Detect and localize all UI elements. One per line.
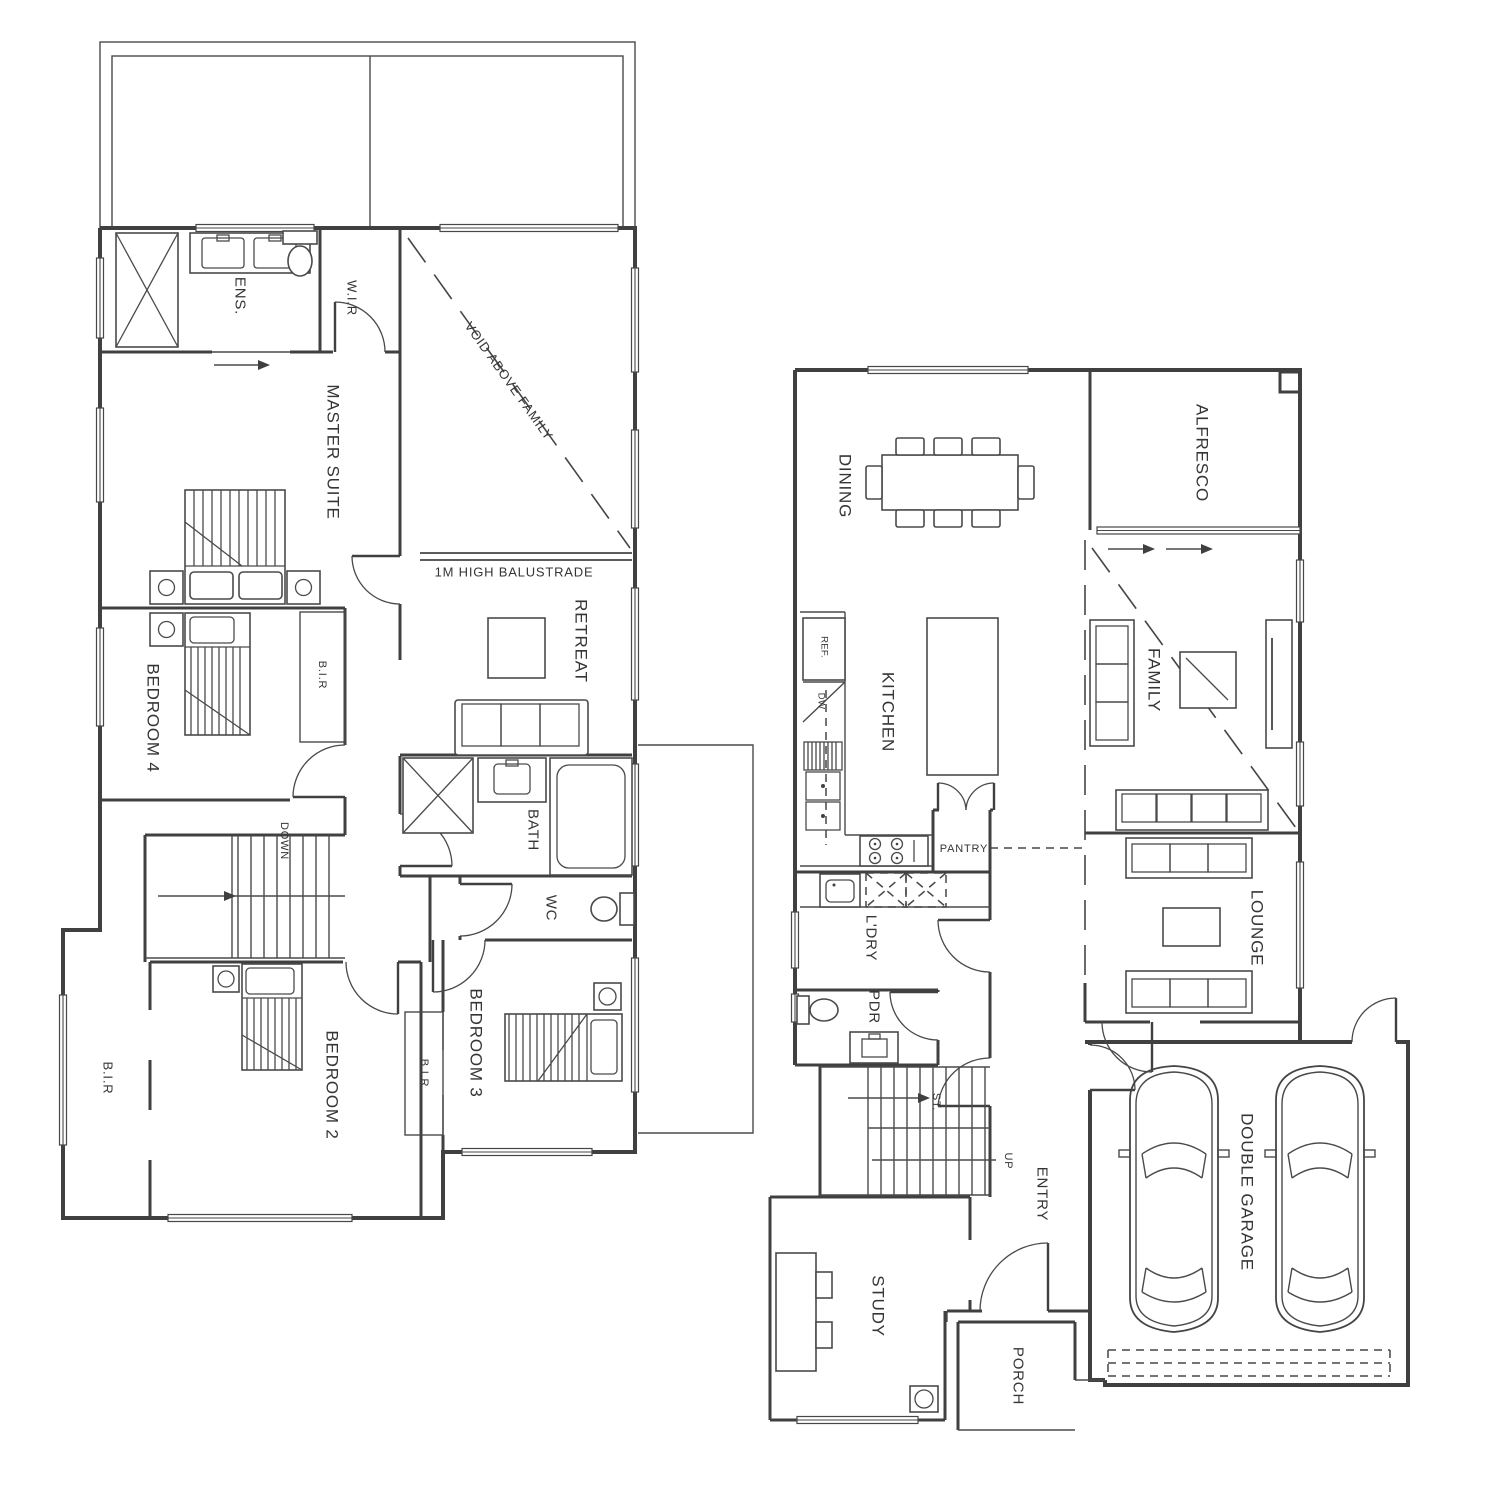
upper-roof-outline: [100, 42, 635, 228]
laundry-bench: [800, 873, 990, 907]
label-bedroom-3: BEDROOM 3: [467, 988, 486, 1097]
label-powder: PDR: [866, 990, 883, 1024]
label-porch: PORCH: [1010, 1347, 1027, 1405]
lower-floor-reference-outline: [638, 745, 753, 1133]
floor-plan-sheet: ENS. W.I.R MASTER SUITE VOID ABOVE FAMIL…: [0, 0, 1500, 1500]
label-void-above-family: VOID ABOVE FAMILY: [462, 319, 557, 443]
lounge-furniture: [1126, 838, 1252, 1013]
wc-toilet: [591, 893, 634, 925]
bedroom2-bed: [213, 964, 302, 1070]
car-2: [1265, 1066, 1375, 1332]
family-furniture: [1090, 620, 1292, 830]
kitchen-island: [927, 618, 998, 775]
lounge-table: [1163, 908, 1220, 946]
label-family: FAMILY: [1145, 648, 1164, 712]
label-balustrade: 1M HIGH BALUSTRADE: [435, 565, 594, 580]
label-alfresco: ALFRESCO: [1193, 404, 1212, 502]
bath-tub: [550, 758, 632, 875]
label-kitchen: KITCHEN: [879, 672, 898, 752]
ground-labels: DINING ALFRESCO KITCHEN REF. DW PANTRY F…: [816, 404, 1267, 1405]
cooktop: [860, 836, 928, 866]
bedroom4-bed: [150, 613, 250, 735]
label-study: STUDY: [869, 1275, 888, 1337]
label-double-garage: DOUBLE GARAGE: [1238, 1113, 1257, 1271]
upper-floor-plan: ENS. W.I.R MASTER SUITE VOID ABOVE FAMIL…: [60, 42, 754, 1222]
study-furniture: [776, 1253, 938, 1412]
label-bath: BATH: [525, 809, 542, 851]
label-stairs: ST.: [930, 1093, 942, 1111]
label-laundry: L'DRY: [863, 915, 880, 962]
dining-table: [866, 438, 1034, 527]
bath-shower: [403, 758, 473, 833]
upper-stairs: [145, 835, 345, 958]
label-pantry: PANTRY: [940, 843, 988, 855]
garage-door: [1108, 1350, 1390, 1376]
car-1: [1119, 1066, 1229, 1332]
label-down: DOWN: [278, 822, 290, 860]
bath-vanity: [478, 758, 546, 802]
label-bir-bedroom4: B.I.R: [316, 661, 328, 689]
ground-dashed-lines: [826, 540, 1296, 1022]
bedroom3-bed: [505, 983, 622, 1081]
ground-floor-plan: DINING ALFRESCO KITCHEN REF. DW PANTRY F…: [770, 367, 1408, 1431]
label-lounge: LOUNGE: [1248, 890, 1267, 967]
label-wir: W.I.R: [345, 280, 360, 316]
label-entry: ENTRY: [1034, 1167, 1051, 1222]
label-fridge: REF.: [819, 636, 830, 658]
master-bed: [150, 490, 320, 604]
label-dishwasher: DW: [816, 693, 827, 709]
ens-shower: [116, 233, 178, 347]
study-desk: [776, 1253, 816, 1371]
label-dining: DINING: [836, 454, 855, 518]
retreat-table: [488, 618, 545, 678]
label-ens: ENS.: [232, 277, 249, 315]
floor-plan-drawing: ENS. W.I.R MASTER SUITE VOID ABOVE FAMIL…: [0, 0, 1500, 1500]
retreat-sofa: [455, 700, 588, 755]
tv-unit: [1266, 620, 1292, 748]
ground-outer-walls: [795, 370, 1408, 1385]
upper-furniture: [116, 231, 634, 1081]
label-bir-bedroom2: B.I.R: [101, 1062, 116, 1095]
alfresco-slider: [1097, 527, 1300, 554]
label-retreat: RETREAT: [572, 599, 591, 683]
label-wc: WC: [543, 895, 560, 922]
ground-stairs: [820, 1067, 996, 1195]
upper-doors: [212, 302, 512, 1014]
label-up: UP: [1002, 1153, 1014, 1170]
label-bir-bedroom3: B.I.R: [418, 1059, 430, 1087]
label-bedroom-2: BEDROOM 2: [323, 1030, 342, 1139]
label-master-suite: MASTER SUITE: [324, 384, 343, 519]
label-bedroom-4: BEDROOM 4: [144, 663, 163, 772]
